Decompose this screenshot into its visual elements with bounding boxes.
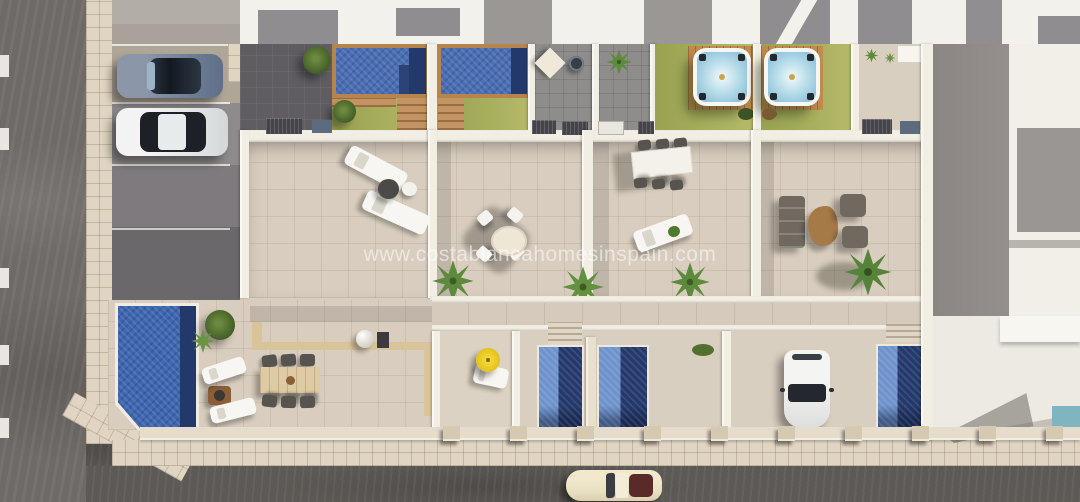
fence-pier bbox=[711, 426, 728, 441]
pool-shadow bbox=[511, 48, 527, 94]
hot-tub bbox=[693, 48, 751, 106]
south-wall bbox=[140, 427, 1080, 440]
ac-unit-white bbox=[598, 121, 624, 135]
kidney-coffee-table bbox=[808, 206, 838, 246]
garden-wall bbox=[753, 44, 761, 138]
car-cabin bbox=[149, 58, 201, 94]
garden-tree bbox=[333, 100, 356, 123]
car-windshield bbox=[606, 473, 615, 499]
parasol-pole bbox=[486, 358, 490, 362]
unit1-pool bbox=[332, 44, 430, 98]
hot-tub bbox=[764, 48, 820, 106]
unit2-pool bbox=[437, 44, 531, 98]
yard-wall bbox=[512, 331, 520, 431]
walkway bbox=[430, 303, 923, 325]
fence-pier bbox=[979, 426, 996, 441]
watermark-text: www.costablancahomesinspain.com bbox=[0, 243, 1080, 267]
potted-palm bbox=[190, 328, 216, 354]
yard-chair bbox=[300, 396, 315, 409]
dining-chair bbox=[638, 139, 652, 150]
roof-block bbox=[644, 0, 712, 46]
armchair bbox=[840, 194, 866, 217]
outdoor-sofa bbox=[779, 196, 805, 248]
pool-shadow bbox=[180, 306, 196, 428]
street-car-cream bbox=[566, 470, 662, 501]
parking-line bbox=[112, 164, 230, 166]
wall-shadow bbox=[761, 142, 774, 298]
neighbor-building-shadow bbox=[933, 44, 1009, 316]
ac-unit bbox=[638, 121, 654, 134]
car-windshield bbox=[788, 384, 826, 402]
fence-pier bbox=[1046, 426, 1063, 441]
yard-chair bbox=[281, 396, 296, 409]
car-roof bbox=[158, 114, 186, 150]
car-rear-glass bbox=[792, 354, 822, 360]
yard-chair bbox=[300, 354, 315, 366]
garden-wall bbox=[427, 44, 437, 138]
yard1-pool bbox=[118, 306, 196, 428]
lane-dash bbox=[0, 418, 9, 438]
utility-box bbox=[312, 120, 332, 133]
car-roof bbox=[616, 473, 628, 498]
yellow-parasol bbox=[476, 348, 500, 372]
walkway-wall bbox=[430, 296, 923, 303]
car-rear-window bbox=[629, 474, 653, 497]
shrub bbox=[692, 344, 714, 356]
pool-shadow bbox=[409, 48, 426, 94]
dark-planter bbox=[377, 332, 389, 348]
utility-box bbox=[900, 121, 920, 134]
neighbor-roof bbox=[1009, 44, 1080, 316]
parked-car-blue bbox=[117, 54, 223, 98]
boundary-wall bbox=[921, 44, 933, 440]
fence-pier bbox=[577, 426, 594, 441]
parking-line bbox=[112, 228, 230, 230]
bottom-sidewalk bbox=[112, 440, 1080, 466]
fence-pier bbox=[845, 426, 862, 441]
roof-block bbox=[396, 8, 460, 36]
bbq-grill bbox=[569, 56, 584, 71]
pool-step bbox=[399, 65, 409, 94]
pergola-shadow bbox=[250, 306, 432, 322]
roof-block bbox=[858, 0, 912, 46]
ac-unit bbox=[532, 120, 556, 134]
wood-dining-table bbox=[260, 367, 320, 393]
fire-pit-bowl bbox=[214, 390, 225, 401]
fence-pier bbox=[510, 426, 527, 441]
roof-block bbox=[1038, 16, 1080, 46]
roof-highlight bbox=[775, 0, 818, 46]
car-mirror bbox=[829, 388, 834, 392]
driveway-car-white bbox=[784, 350, 830, 428]
roof-strip bbox=[112, 0, 1080, 46]
fence-pier bbox=[912, 426, 929, 441]
hot-tub-jet bbox=[719, 74, 725, 80]
neighbor-roofline bbox=[1000, 316, 1080, 342]
white-roof-box bbox=[898, 46, 921, 62]
fence-pier bbox=[443, 426, 460, 441]
pergola-beam bbox=[252, 322, 262, 350]
pool-divider-wall bbox=[586, 337, 596, 431]
fence-pier bbox=[644, 426, 661, 441]
flower-pot bbox=[762, 108, 776, 120]
roof-block bbox=[966, 0, 1002, 46]
lane-dash bbox=[0, 345, 9, 365]
roof-block bbox=[112, 0, 240, 25]
lane-dash bbox=[0, 268, 9, 288]
narrow-pool bbox=[597, 345, 649, 433]
sphere-lamp bbox=[356, 330, 374, 348]
garden-wall bbox=[851, 44, 859, 138]
ac-unit bbox=[862, 119, 892, 134]
patio-wall bbox=[240, 130, 249, 298]
round-tree bbox=[303, 46, 331, 74]
pergola-beam bbox=[424, 342, 432, 416]
table-centerpiece bbox=[286, 376, 295, 385]
dining-chair bbox=[670, 179, 684, 190]
stairs-concrete bbox=[548, 322, 582, 345]
hot-tub-jet bbox=[789, 74, 795, 80]
lane-dash bbox=[0, 55, 9, 77]
yard-chair bbox=[261, 394, 277, 408]
parked-car-white bbox=[116, 108, 228, 156]
car-windshield bbox=[147, 62, 155, 90]
parking-path bbox=[228, 44, 240, 82]
yard-wall bbox=[432, 331, 440, 431]
small-plant bbox=[864, 48, 879, 63]
side-table-dark bbox=[378, 179, 399, 199]
parking-line bbox=[112, 44, 230, 46]
car-mirror bbox=[780, 388, 785, 392]
parking-line bbox=[112, 102, 230, 104]
small-plant bbox=[884, 52, 896, 64]
patio-wall bbox=[751, 130, 761, 298]
roof-block bbox=[258, 10, 338, 46]
pergola-beam bbox=[252, 342, 432, 350]
aerial-render-scene: www.costablancahomesinspain.com bbox=[0, 0, 1080, 502]
roof-block bbox=[484, 0, 552, 46]
neighbor-lower-terrace bbox=[933, 316, 1080, 440]
palm-plant bbox=[605, 48, 633, 76]
dining-chair bbox=[652, 178, 666, 189]
roof-block bbox=[760, 0, 830, 46]
fence-pier bbox=[778, 426, 795, 441]
yard-chair bbox=[261, 354, 278, 368]
side-table-white bbox=[402, 182, 417, 196]
shrub bbox=[738, 108, 754, 120]
neighbor-roof-inset bbox=[1017, 128, 1080, 232]
ac-unit bbox=[266, 118, 302, 134]
dining-chair bbox=[634, 177, 648, 188]
folded-parasol bbox=[534, 47, 565, 78]
yard-wall bbox=[722, 331, 731, 431]
lane-dash bbox=[0, 128, 9, 150]
narrow-pool bbox=[537, 345, 584, 433]
yard-chair bbox=[281, 353, 297, 366]
